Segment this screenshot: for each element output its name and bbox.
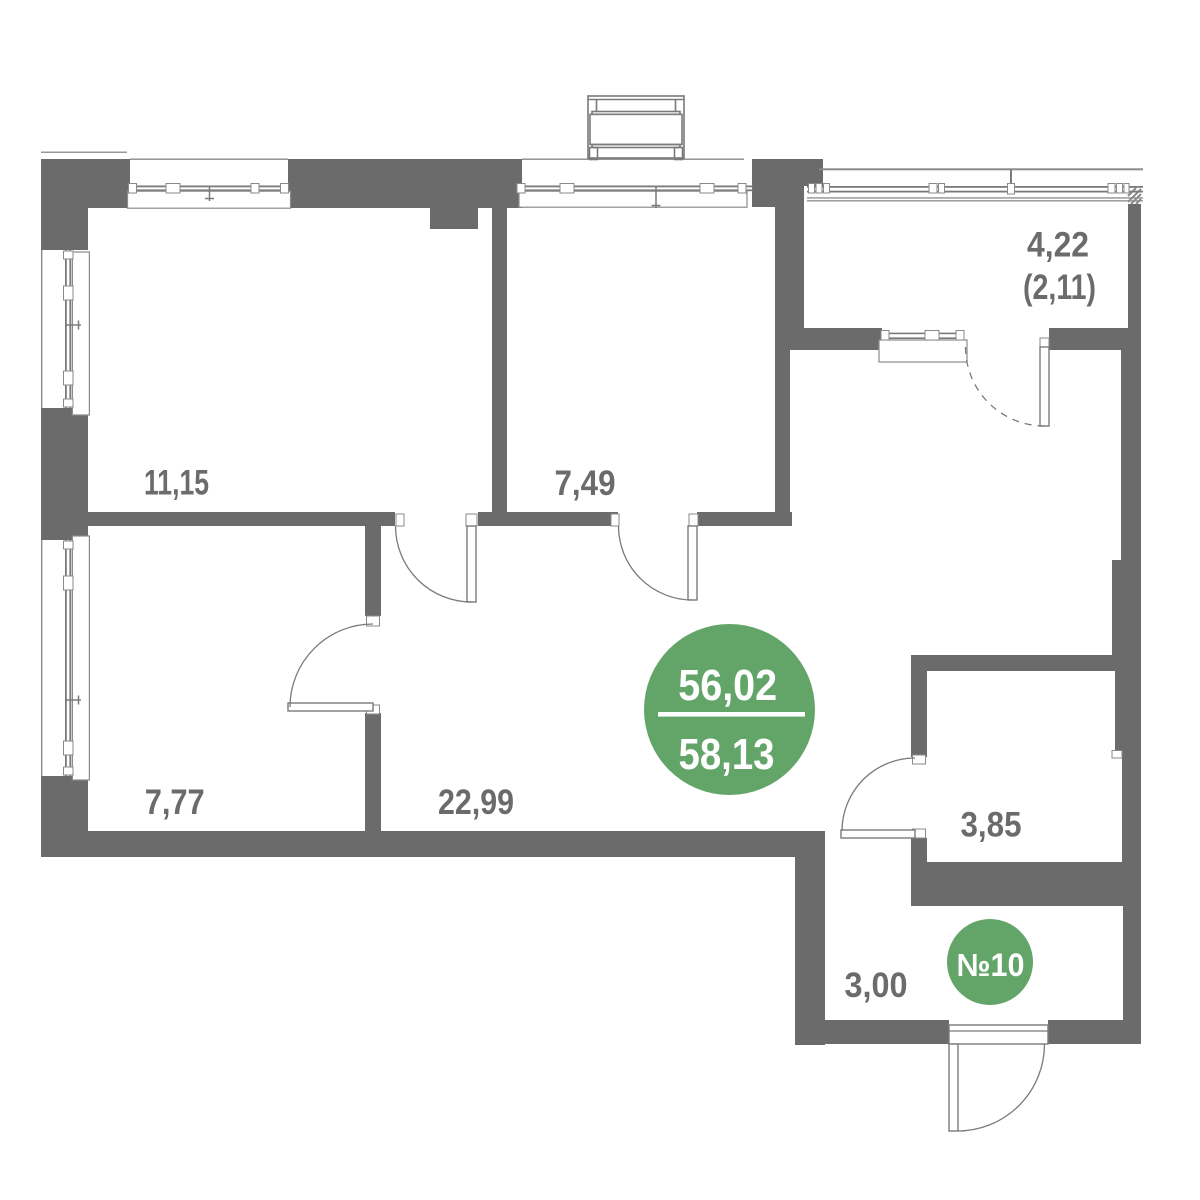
svg-text:3,00: 3,00 [845,966,908,1005]
svg-text:3,85: 3,85 [961,806,1022,845]
svg-text:22,99: 22,99 [438,783,514,822]
svg-text:7,49: 7,49 [555,464,616,503]
svg-text:(2,11): (2,11) [1023,268,1096,307]
svg-text:№10: №10 [957,947,1025,983]
svg-text:7,77: 7,77 [145,783,205,822]
svg-text:56,02: 56,02 [678,661,777,710]
svg-text:4,22: 4,22 [1027,226,1089,265]
svg-text:58,13: 58,13 [679,730,775,779]
svg-text:11,15: 11,15 [144,464,209,503]
